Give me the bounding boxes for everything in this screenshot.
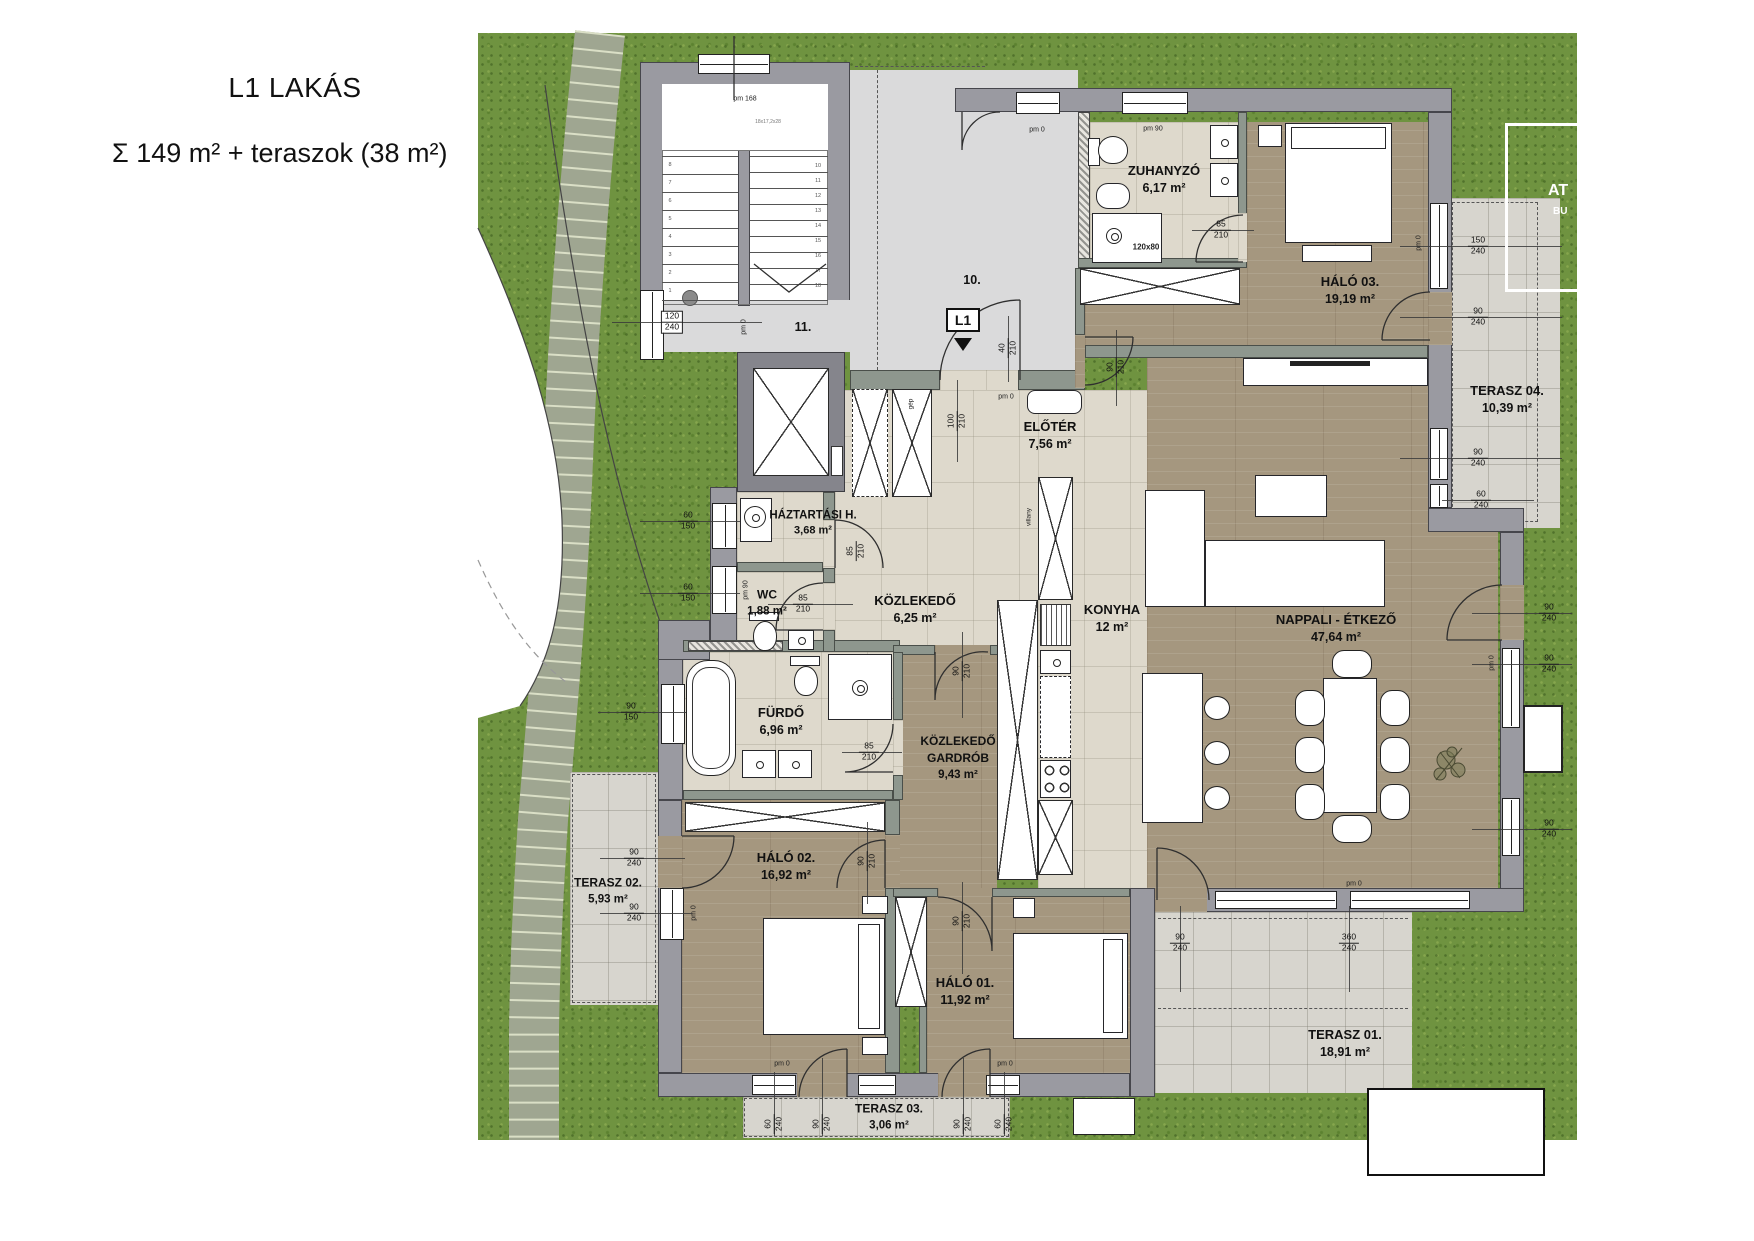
dim-value-bottom: 210 [963, 661, 973, 681]
furdo-west-window [661, 684, 685, 744]
dim-label: 90240 [624, 903, 644, 924]
stair-tread-left [662, 282, 738, 283]
dining-chair [1295, 784, 1325, 820]
sofa-long [1205, 540, 1385, 607]
dim-label: 60150 [678, 583, 698, 604]
halo03-bench [1302, 245, 1372, 262]
exterior-unit-pad [1523, 705, 1563, 773]
entry-bench [1027, 390, 1082, 414]
floor-terasz01 [1155, 912, 1412, 1093]
dim-label: 60240 [1471, 490, 1491, 511]
stair-top-window [698, 54, 770, 74]
stair-tread-left [662, 300, 738, 301]
room-label-wc: WC1,88 m² [747, 587, 787, 620]
dim-value-bottom: 240 [1539, 614, 1559, 624]
parapet-label: pm 0 [1029, 127, 1045, 134]
dim-value-bottom: 240 [1539, 830, 1559, 840]
room-label-nappali: NAPPALI - ÉTKEZŐ47,64 m² [1276, 611, 1396, 647]
dim-label: 90210 [952, 911, 973, 931]
machine-closet-label: gép [908, 399, 915, 410]
parapet-label: pm 0 [998, 394, 1014, 401]
dim-label: 90240 [624, 848, 644, 869]
gap-terasz03-door-2 [938, 1073, 990, 1097]
dim-value-bottom: 240 [1005, 1114, 1015, 1134]
elevator-door [831, 446, 843, 476]
dim-value-bottom: 150 [678, 594, 698, 604]
wall-wc-east-3 [823, 630, 835, 652]
dim-label: 90240 [1468, 307, 1488, 328]
bar-stool [1204, 786, 1230, 810]
halo01-bed-pillow [1103, 939, 1123, 1033]
kitchen-island [1142, 673, 1203, 823]
parapet-label: pm 168 [733, 96, 756, 103]
room-label-konyha: KONYHA12 m² [1084, 601, 1140, 637]
dining-chair [1380, 690, 1410, 726]
parapet-label: pm 0 [997, 1061, 1013, 1068]
dim-value-bottom: 240 [775, 1114, 785, 1134]
gardrob-wardrobe-column [997, 600, 1038, 880]
dim-value-bottom: 210 [958, 411, 968, 431]
room-label-furdo: FÜRDŐ6,96 m² [758, 704, 804, 740]
parapet-label: pm 0 [774, 1061, 790, 1068]
bathtub [686, 660, 736, 776]
halo01-south-window [986, 1075, 1020, 1095]
parapet-label: pm 0 [1416, 235, 1423, 251]
dim-value-bottom: 240 [624, 914, 644, 924]
haztartasi-boiler [744, 506, 766, 528]
stair-number: 7 [668, 180, 671, 186]
hall-north-window [1016, 92, 1060, 114]
dim-label: 90210 [857, 851, 878, 871]
stair-number: 11 [815, 178, 821, 184]
halo02-bed-pillow [858, 924, 880, 1029]
dim-value-bottom: 210 [859, 753, 879, 763]
wall-zuhanyzo-east [1238, 112, 1247, 215]
dim-label: 90240 [812, 1114, 833, 1134]
room-label-terasz03: TERASZ 03.3,06 m² [855, 1101, 923, 1134]
dim-value-bottom: 210 [963, 911, 973, 931]
shower-head-icon [1106, 228, 1122, 244]
dining-table [1323, 678, 1377, 813]
kitchen-drainer [1040, 604, 1071, 646]
stair-tread-left [662, 210, 738, 211]
halo02-nightstand-1 [862, 896, 888, 914]
electric-closet-label: villany [1026, 508, 1033, 526]
stair-tread-right [750, 172, 828, 173]
wall-furdo-south [683, 790, 893, 800]
shower-tray [1092, 213, 1162, 263]
stair-number: 10 [815, 163, 821, 169]
halo02-nightstand-2 [862, 1037, 888, 1055]
stair-number: 4 [668, 234, 671, 240]
dim-value-bottom: 210 [868, 851, 878, 871]
south-small-window [858, 1075, 896, 1095]
dim-value-bottom: 210 [1117, 357, 1127, 377]
dim-label: 90240 [1539, 654, 1559, 675]
watermark-line2: BU [1553, 206, 1567, 217]
zuhanyzo-cabinet-2 [1210, 163, 1238, 197]
dim-label: 360240 [1339, 933, 1359, 954]
room-label-halo02: HÁLÓ 02.16,92 m² [757, 849, 816, 885]
furdo-sink-2 [778, 750, 812, 778]
dim-value-bottom: 240 [1471, 501, 1491, 511]
room-label-terasz01: TERASZ 01.18,91 m² [1308, 1026, 1382, 1062]
elevator-car [753, 368, 829, 476]
dim-value-bottom: 210 [1211, 231, 1231, 241]
dim-value-bottom: 240 [1339, 944, 1359, 954]
hall-number-lower: 11. [795, 320, 812, 334]
parapet-label: pm 90 [1143, 126, 1162, 133]
living-east-window-2 [1502, 798, 1520, 856]
furdo-shower-head-icon [852, 680, 868, 696]
living-south-glazing-1 [1215, 891, 1337, 909]
kitchen-hob [1040, 760, 1071, 798]
room-label-kozlekedo: KÖZLEKEDŐ6,25 m² [874, 592, 956, 628]
dim-label: 85210 [793, 594, 813, 615]
haztartasi-west-window [712, 503, 737, 549]
stair-tread-left [662, 228, 738, 229]
wc-sink [788, 630, 814, 650]
dim-label: 85210 [859, 742, 879, 763]
dim-value-bottom: 240 [1539, 665, 1559, 675]
watermark-line1: AT [1548, 182, 1568, 200]
dim-value-bottom: 150 [678, 522, 698, 532]
stair-tread-left [662, 192, 738, 193]
room-label-terasz04: TERASZ 04.10,39 m² [1470, 382, 1544, 418]
floor-plan-canvas: L1 LAKÁS Σ 149 m² + teraszok (38 m²) [0, 0, 1754, 1241]
dim-label: 90240 [1539, 603, 1559, 624]
stair-tread-right [750, 204, 828, 205]
dim-label: 90240 [1539, 819, 1559, 840]
halo03-east-window-90a [1430, 428, 1448, 480]
stair-tread-right [750, 188, 828, 189]
stair-tread-left [662, 174, 738, 175]
parapet-label: pm 0 [1489, 655, 1496, 671]
stair-number: 8 [668, 162, 671, 168]
zuhanyzo-cabinet-1 [1210, 125, 1238, 159]
kitchen-counter [1040, 676, 1071, 758]
halo03-bed-pillow [1291, 127, 1386, 149]
dim-value-bottom: 240 [1468, 459, 1488, 469]
sofa-return [1145, 490, 1205, 607]
room-label-eloter: ELŐTÉR7,56 m² [1024, 418, 1077, 454]
hall-closet-dashed [852, 389, 888, 497]
parapet-label: pm 0 [1346, 881, 1362, 888]
zuhanyzo-toilet-bowl [1098, 136, 1128, 164]
wall-halo03-south [1085, 345, 1428, 358]
stair-landing-floor [662, 300, 850, 352]
furdo-toilet-tank [790, 656, 820, 666]
wc-toilet-bowl [753, 621, 777, 651]
gap-entry-door [940, 370, 1018, 390]
dim-value-bottom: 150 [621, 713, 641, 723]
dimension-line [598, 712, 686, 713]
stair-number: 15 [815, 238, 821, 244]
wall-step-east [1428, 508, 1524, 532]
dim-value-bottom: 210 [1009, 338, 1019, 358]
gap-wc-door [823, 583, 835, 630]
stair-tread-right [750, 156, 828, 157]
dim-value-bottom: 240 [662, 323, 682, 333]
gap-terasz01-door [1155, 888, 1207, 912]
exterior-patch-southeast [1367, 1088, 1545, 1176]
gap-zuhanyzo-door [1238, 213, 1247, 262]
stair-number: 17 [815, 268, 821, 274]
wall-halo02-east-1 [885, 800, 900, 835]
halo01-wardrobe [895, 897, 927, 1007]
kitchen-sink [1040, 650, 1071, 674]
wall-furdo-east-2 [893, 775, 903, 800]
parapet-label: pm 90 [743, 580, 750, 599]
stair-number: 14 [815, 223, 821, 229]
exterior-patch-south [1073, 1098, 1135, 1135]
halo02-wardrobe [685, 802, 885, 832]
halo03-nightstand [1258, 125, 1282, 147]
dim-value-bottom: 240 [1468, 247, 1488, 257]
dim-label: 85210 [1211, 220, 1231, 241]
stair-number: 2 [668, 270, 671, 276]
room-label-gardrob: KÖZLEKEDŐGARDRÓB 9,43 m² [920, 733, 995, 783]
hall-vertical-dashed [877, 70, 878, 370]
halo03-wardrobe [1080, 268, 1240, 305]
wall-entry-west [850, 370, 940, 390]
unit-arrow-icon [954, 338, 972, 351]
halo02-west-window [660, 888, 684, 940]
dining-chair [1332, 815, 1372, 843]
dim-value-bottom: 240 [624, 859, 644, 869]
dining-chair [1332, 650, 1372, 678]
furdo-toilet-bowl [794, 666, 818, 696]
stair-tread-left [662, 156, 738, 157]
terasz01-dashed-line-1 [1158, 918, 1408, 919]
gap-halo01-door [938, 888, 992, 897]
gap-halo02-ne-door [885, 835, 900, 888]
tv-icon [1290, 361, 1370, 366]
dim-label: 120240 [662, 312, 682, 333]
dim-value-bottom: 240 [964, 1114, 974, 1134]
room-label-zuhanyzo: ZUHANYZÓ6,17 m² [1128, 162, 1200, 198]
halo03-east-window-60 [1430, 484, 1448, 508]
gap-halo03-west-door [1075, 335, 1085, 388]
stair-tread-left [662, 246, 738, 247]
stair-tread-right [750, 300, 828, 301]
zuhanyzo-sink [1096, 183, 1130, 209]
parapet-label: pm 0 [691, 905, 698, 921]
dim-label: 150240 [1468, 236, 1488, 257]
stair-number: 1 [668, 288, 671, 294]
stair-number: 16 [815, 253, 821, 259]
unit-badge-label: L1 [955, 312, 971, 328]
stair-number: 13 [815, 208, 821, 214]
room-label-halo03: HÁLÓ 03.19,19 m² [1321, 273, 1380, 309]
gap-furdo-door [893, 720, 903, 775]
coffee-table [1255, 475, 1327, 517]
dim-value-bottom: 240 [823, 1114, 833, 1134]
dim-label: 40210 [998, 338, 1019, 358]
living-south-glazing-2 [1350, 891, 1470, 909]
furdo-sink-1 [742, 750, 776, 778]
kitchen-tall-cabinet [1038, 477, 1073, 600]
room-label-halo01: HÁLÓ 01.11,92 m² [936, 974, 995, 1010]
dim-value-bottom: 210 [793, 605, 813, 615]
dim-value-bottom: 240 [1468, 318, 1488, 328]
dim-label: 90210 [1106, 357, 1127, 377]
stair-formula-note: 18x17,2x28 [755, 119, 781, 125]
dim-value-bottom: 240 [1170, 944, 1190, 954]
parapet-label: pm 0 [741, 319, 748, 335]
wall-halo01-north-1 [893, 888, 938, 897]
dim-label: 90240 [1468, 448, 1488, 469]
room-label-haztartasi: HÁZTARTÁSI H.3,68 m² [769, 507, 856, 538]
dim-label: 90210 [952, 661, 973, 681]
dim-label: 90240 [1170, 933, 1190, 954]
dining-chair [1295, 690, 1325, 726]
dim-label: 60240 [994, 1114, 1015, 1134]
wc-west-window [712, 566, 737, 614]
dim-value-bottom: 210 [857, 541, 867, 561]
terasz01-dashed-line-2 [1158, 1008, 1408, 1009]
stair-start-circle [682, 290, 698, 306]
stair-number: 5 [668, 216, 671, 222]
shower-size-label: 120x80 [1133, 243, 1160, 252]
stair-number: 6 [668, 198, 671, 204]
hall-number-upper: 10. [963, 273, 980, 287]
wall-terasz01-west [1130, 888, 1155, 1097]
kitchen-end-cabinet [1038, 800, 1073, 875]
hall-north-dashed [855, 66, 985, 67]
stair-number: 3 [668, 252, 671, 258]
plan-title: L1 LAKÁS [180, 72, 410, 104]
bar-stool [1204, 696, 1230, 720]
dim-label: 90240 [953, 1114, 974, 1134]
dim-label: 85210 [846, 541, 867, 561]
plan-subtitle: Σ 149 m² + teraszok (38 m²) [112, 138, 448, 169]
bar-stool [1204, 741, 1230, 765]
dimension-line [612, 322, 762, 323]
living-east-window-1 [1502, 648, 1520, 728]
wall-halo01-north-2 [992, 888, 1130, 897]
stair-number: 18 [815, 283, 821, 289]
stair-tread-right [750, 220, 828, 221]
stair-tread-left [662, 264, 738, 265]
wall-wc-east-2 [823, 568, 835, 583]
stair-number: 12 [815, 193, 821, 199]
dim-label: 100210 [947, 411, 968, 431]
watermark-frame [1505, 123, 1660, 292]
dining-chair [1380, 784, 1410, 820]
gap-halo03-terrace-door [1428, 292, 1452, 345]
gap-halo02-terrace-door [658, 836, 682, 888]
dim-label: 60240 [764, 1114, 785, 1134]
stair-tread-right [750, 236, 828, 237]
zuhanyzo-north-window [1122, 92, 1188, 114]
unit-badge: L1 [946, 308, 980, 332]
wall-furdo-east-1 [893, 652, 903, 720]
wall-zuhanyzo-west-tiled [1078, 112, 1090, 268]
stair-west-window [640, 290, 664, 360]
dining-chair [1380, 737, 1410, 773]
dim-label: 90150 [621, 702, 641, 723]
wall-wc-north [737, 562, 823, 572]
dimension-line [600, 913, 692, 914]
halo01-nightstand [1013, 898, 1035, 918]
dining-chair [1295, 737, 1325, 773]
dim-label: 60150 [678, 511, 698, 532]
